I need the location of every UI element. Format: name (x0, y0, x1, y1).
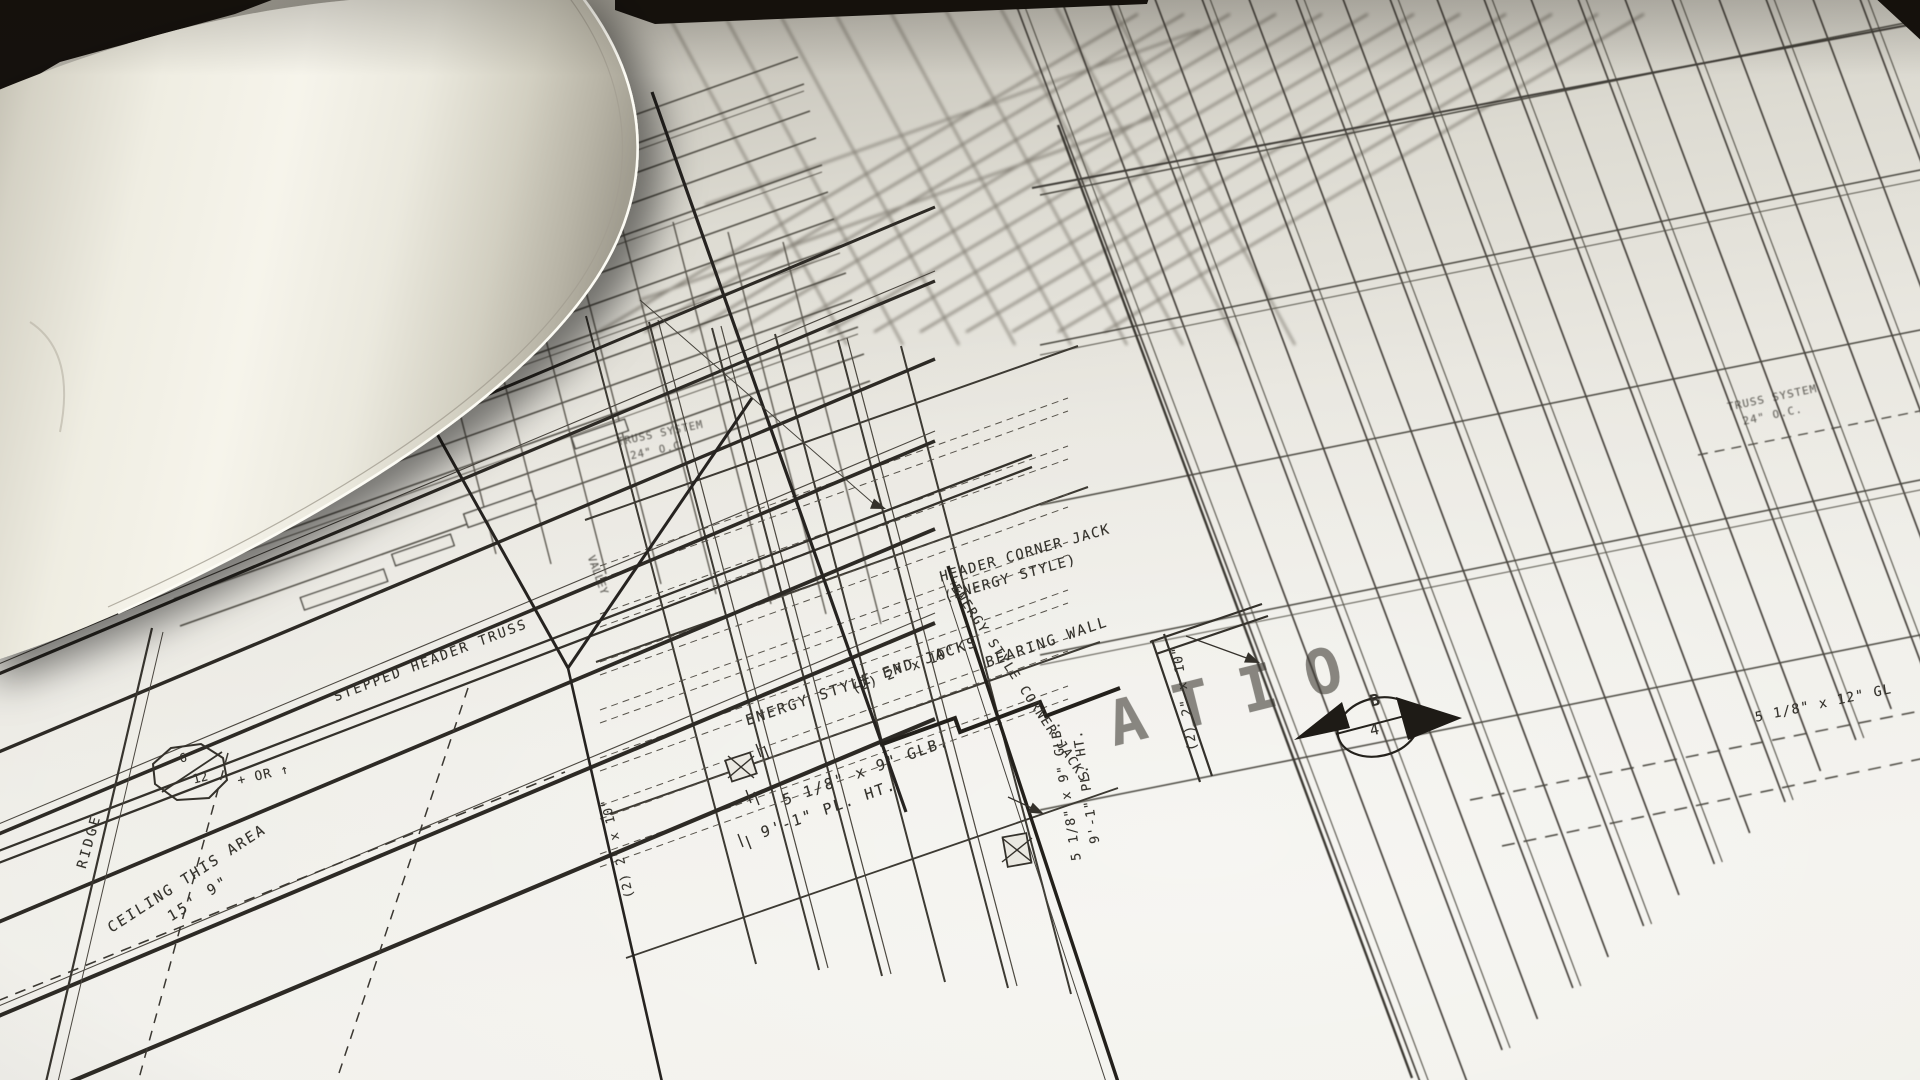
label-truss-system-left: TRUSS SYSTEM 24" O.C. (616, 418, 708, 467)
label-section-marker-b: B (1368, 690, 1382, 711)
label-glb-vertical: 5 1/8" x 9" GLB. 9'-1" PL. HT. (1046, 716, 1109, 862)
label-2x10-valley: (2) 2" x 10" (597, 797, 636, 900)
label-truss-system-right: TRUSS SYSTEM 24" O.C. (1726, 381, 1822, 432)
label-watermark: ATIO (1100, 625, 1379, 761)
label-glb-beam: 5 1/8" x 9" GLB. 9'-1" PL. HT. (780, 730, 959, 835)
label-section-marker-4: 4 (1368, 720, 1381, 740)
label-pitch-numerator: 6 (178, 750, 188, 765)
label-pitch-suffix: + OR ↑ (236, 762, 291, 789)
label-layer: ATIO STEPPED HEADER TRUSS HEADER CORNER … (0, 0, 1920, 1080)
label-2x10-horizontal: (2) 2" x 10" (850, 643, 957, 698)
blueprint-photo: ATIO STEPPED HEADER TRUSS HEADER CORNER … (0, 0, 1920, 1080)
label-valley: VALLEY (585, 554, 610, 597)
label-stepped-header-truss: STEPPED HEADER TRUSS (332, 616, 530, 705)
label-glb-right: 5 1/8" x 12" GL (1754, 681, 1893, 726)
label-pitch-denominator: 12 (191, 768, 209, 786)
label-ceiling: CEILING THIS AREA 15' 9" (104, 819, 282, 961)
label-ridge: RIDGE (74, 813, 105, 871)
